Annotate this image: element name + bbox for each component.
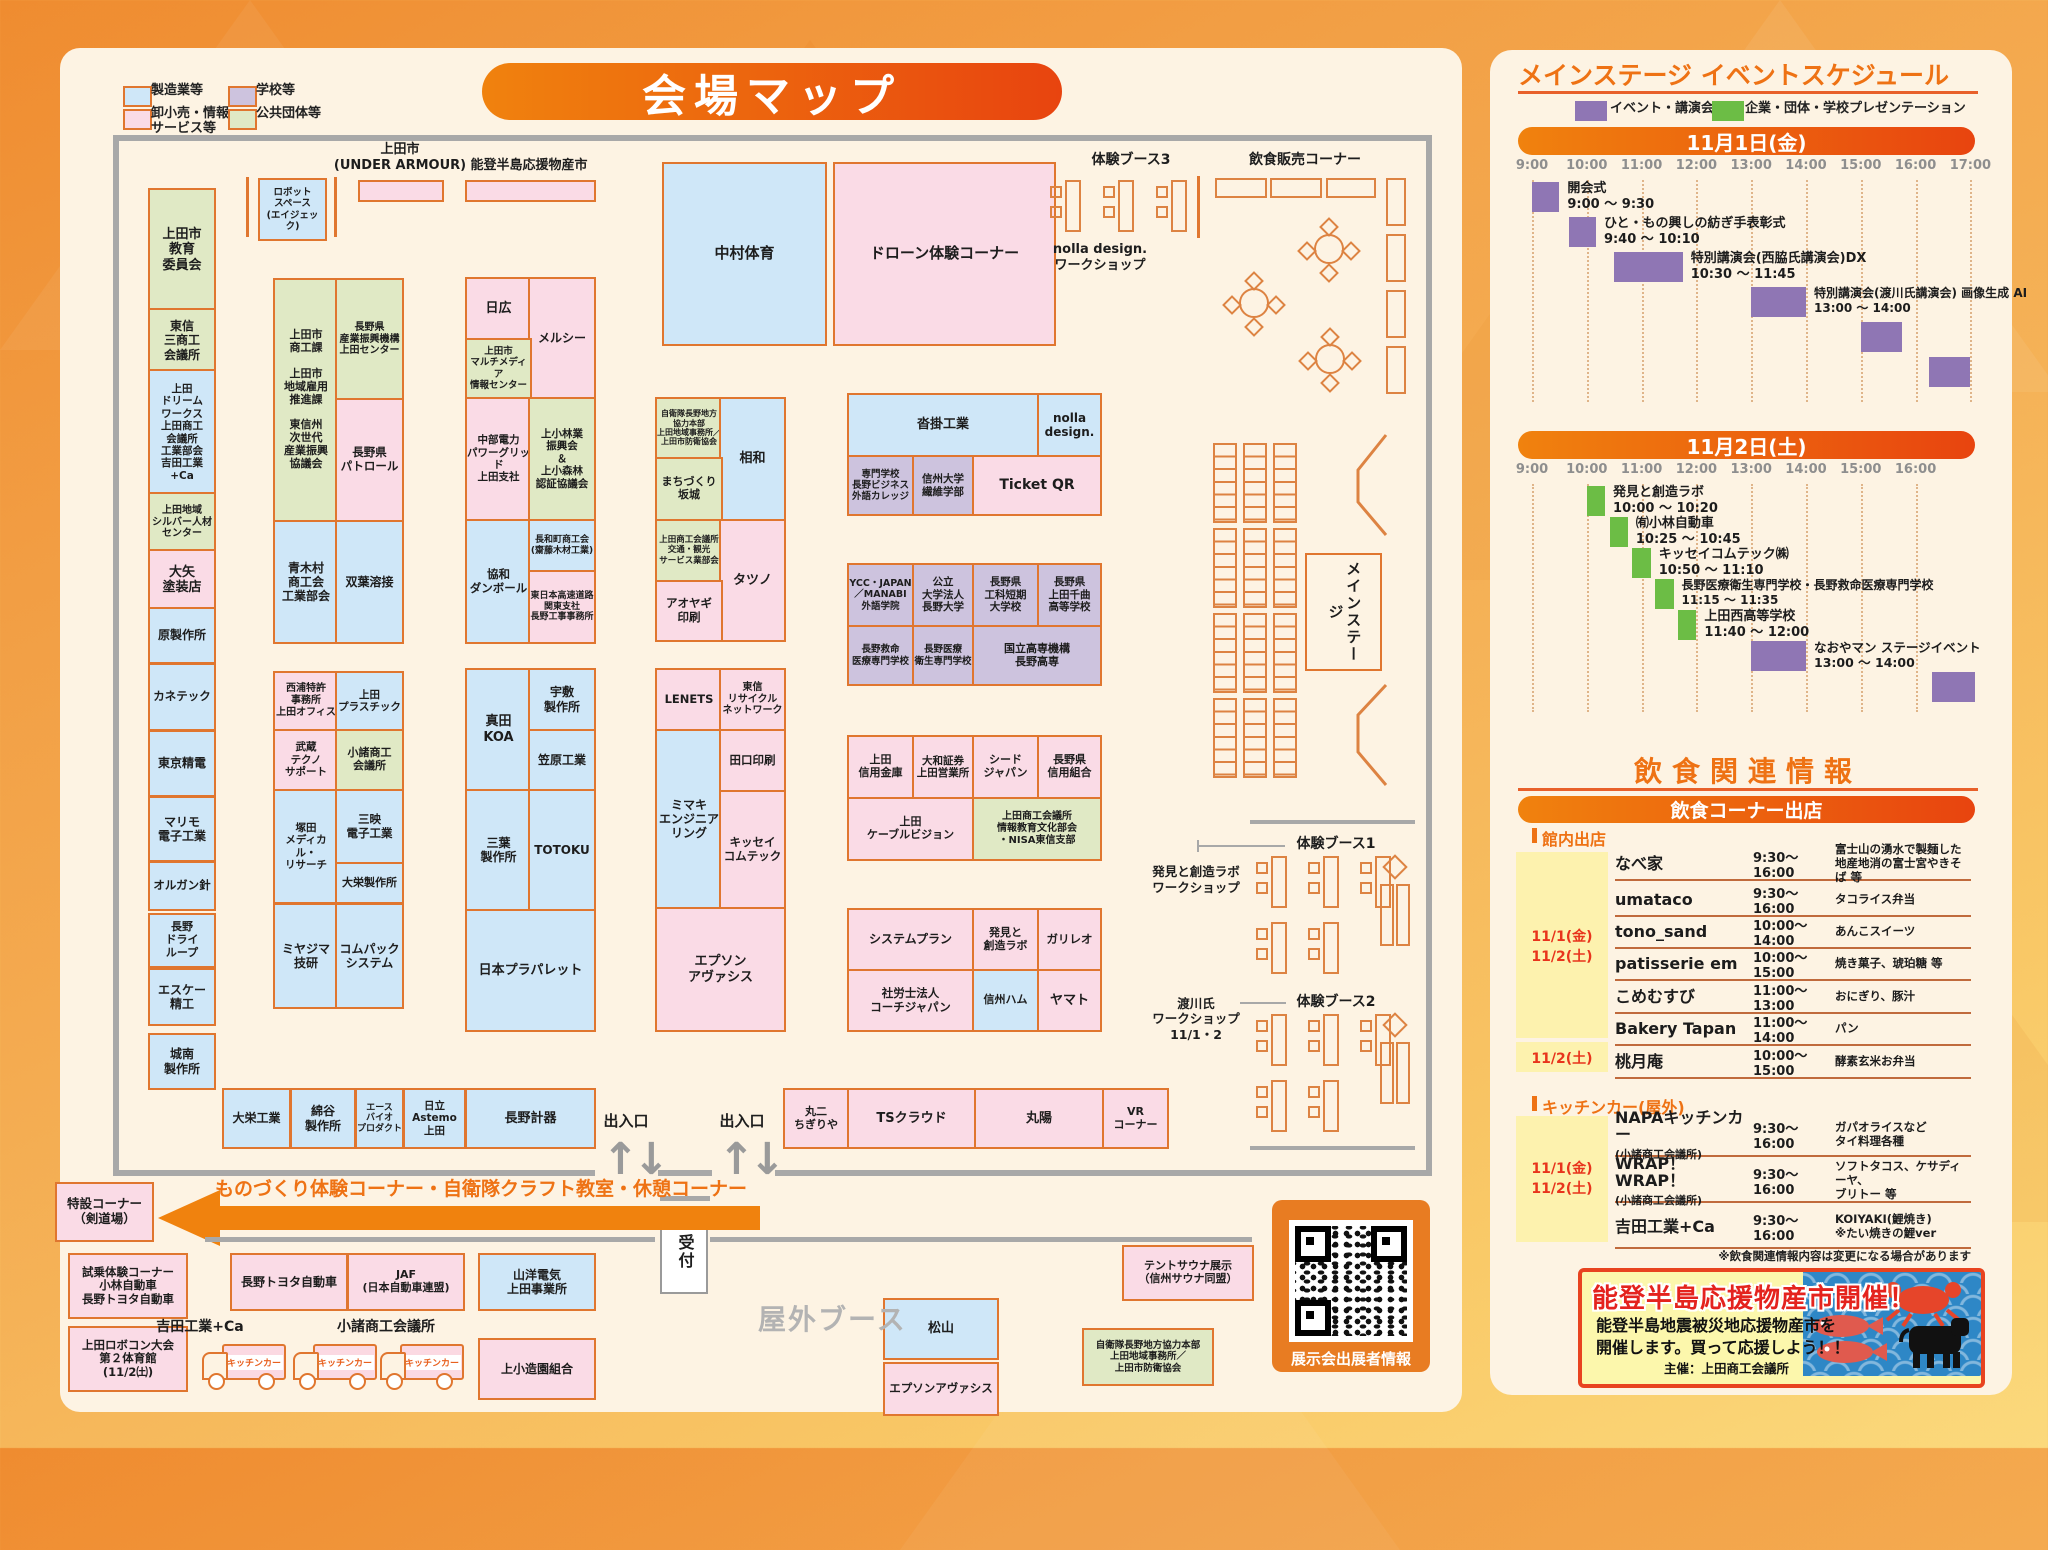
booth: 上田市 教育 委員会 <box>148 188 216 312</box>
food-title-underline <box>1518 788 1978 791</box>
legend-label: 学校等 <box>256 84 295 99</box>
booth: 塚田 メディカル・ リサーチ <box>273 789 339 904</box>
booth: 長野県 産業振興機構 上田センター <box>335 278 404 401</box>
booth: 丸二 ちぎりや <box>783 1088 849 1149</box>
craft-corner-text: ものづくり体験コーナー・自衛隊クラフト教室・休憩コーナー <box>215 1178 775 1202</box>
seating-block <box>1243 443 1267 523</box>
event-label: 特別講演会(西脇氏講演会)DX10:30 ～ 11:45 <box>1691 251 1867 283</box>
table-icon <box>1103 180 1135 234</box>
booth: オルガン針 <box>148 861 216 911</box>
legend-swatch <box>228 86 257 107</box>
table-icon <box>1386 178 1406 226</box>
booth: 特設コーナー （剣道場） <box>55 1182 154 1242</box>
table-icon <box>1215 178 1267 198</box>
booth: 長野県 上田千曲 高等学校 <box>1037 563 1102 627</box>
food-row: 桃月庵10:00～15:00酵素玄米お弁当 <box>1615 1046 1971 1078</box>
booth: マリモ 電子工業 <box>148 796 216 862</box>
booth: 長野県 信用組合 <box>1037 735 1102 799</box>
event-label: キッセイコムテック㈱10:50 ～ 11:10 <box>1659 547 1789 579</box>
booth: 信州ハム <box>972 969 1039 1032</box>
exhibitor-info-qr: 展示会出展者情報 <box>1272 1200 1430 1372</box>
booth: 上田商工会議所 交通・観光 サービス業部会 <box>655 519 723 582</box>
booth: 試乗体験コーナー 小林自動車 長野トヨタ自動車 <box>68 1253 188 1319</box>
table-icon <box>1256 922 1288 976</box>
food-note: ※飲食関連情報内容は変更になる場合があります <box>1615 1248 1971 1264</box>
day-label: 11/1(金) <box>1516 1158 1608 1178</box>
booth: ヤマト <box>1037 969 1102 1032</box>
event-label: 発見と創造ラボ10:00 ～ 10:20 <box>1613 485 1718 517</box>
map-border-bottom <box>113 1170 595 1176</box>
booth: 長野県 工科短期 大学校 <box>972 563 1039 627</box>
day1-header: 11月1日(金) <box>1518 127 1975 155</box>
booth: 日広 <box>465 277 532 341</box>
legend-swatch <box>228 109 257 130</box>
booth: 山洋電気 上田事業所 <box>478 1253 596 1311</box>
event-bar <box>1569 217 1596 247</box>
booth: 上田市 マルチメディア 情報センター <box>465 338 532 399</box>
kitchen-row: WRAP！WRAP！(小諸商工会議所) 9:30～16:00ソフトタコス、ケサデ… <box>1615 1160 1971 1202</box>
booth: 上田地域 シルバー人材 センター <box>148 492 216 553</box>
table-icon <box>1256 856 1288 910</box>
table-icon <box>1270 178 1322 198</box>
booth: YCC・JAPAN ／MANABI 外語学院 <box>847 563 914 627</box>
seating-block <box>1213 613 1237 693</box>
booth: 宇敷 製作所 <box>528 668 596 731</box>
booth: システムプラン <box>847 908 974 971</box>
booth: 上田 ドリーム ワークス 上田商工 会議所 工業部会 吉田工業+Ca <box>148 369 216 496</box>
booth: 大和証券 上田営業所 <box>912 735 974 799</box>
noto-support-banner: 能登半島応援物産市開催！ 能登半島地震被災地応援物産市を 開催します。買って応援… <box>1578 1268 1985 1388</box>
section-line <box>1250 1146 1415 1150</box>
map-area-label: nolla design. ワークショップ <box>1022 240 1178 276</box>
booth: メルシー <box>528 277 596 399</box>
indoor-header: 館内出店 <box>1542 826 1606 850</box>
booth: 上田商工会議所 情報教育文化部会 ・NISA東信支部 <box>972 797 1102 861</box>
booth: 丸陽 <box>974 1088 1104 1149</box>
seating-block <box>1243 528 1267 608</box>
event-bar <box>1632 548 1650 578</box>
booth: コムパック システム <box>335 903 404 1009</box>
booth: 東信 リサイクル ネットワーク <box>719 668 786 731</box>
booth: タツノ <box>719 519 786 642</box>
day2-header: 11月2日(土) <box>1518 431 1975 459</box>
booth: 田口印刷 <box>719 729 786 792</box>
stage-curtain-line <box>1350 430 1400 790</box>
booth <box>358 180 444 202</box>
seating-block <box>1273 443 1297 523</box>
booth: Ticket QR <box>972 455 1102 516</box>
event-bar <box>1614 252 1683 282</box>
banner-line: 能登半島地震被災地応援物産市を <box>1596 1312 1836 1336</box>
event-label: 上田西高等学校11:40 ～ 12:00 <box>1704 609 1809 641</box>
legend-swatch <box>123 109 152 130</box>
booth: 東信 三商工 会議所 <box>148 308 216 373</box>
booth: 長野トヨタ自動車 <box>230 1253 348 1311</box>
event-bar <box>1861 322 1902 352</box>
booth: 日本プラパレット <box>465 909 596 1032</box>
food-row: patisserie em10:00～15:00焼き菓子、琥珀糖 等 <box>1615 948 1971 980</box>
map-area-label: 体験ブース2 <box>1288 994 1384 1012</box>
divider <box>334 177 337 237</box>
event-bar <box>1587 486 1605 516</box>
booth: 日立 Astemo 上田 <box>403 1088 466 1149</box>
map-area-label: 渡川氏 ワークショップ 11/1・2 <box>1138 992 1254 1046</box>
map-area-label: 発見と創造ラボ ワークショップ <box>1138 862 1254 898</box>
table-icon <box>1380 1042 1394 1104</box>
event-label: 特別講演会(渡川氏講演会) 画像生成 AI13:00 ～ 14:00 <box>1814 286 2027 315</box>
event-bar <box>1929 357 1970 387</box>
seating-block <box>1213 698 1237 778</box>
map-area-label: 飲食販売コーナー <box>1243 152 1367 170</box>
food-section-title: 飲食関連情報 <box>1518 750 1978 790</box>
booth: 武蔵 テクノ サポート <box>273 729 339 791</box>
table-icon <box>1050 180 1082 234</box>
table-icon <box>1308 1080 1340 1134</box>
divider <box>1197 176 1200 238</box>
day-label: 11/1(金) <box>1516 926 1608 946</box>
booth: カネテック <box>148 663 216 731</box>
booth: 東京精電 <box>148 730 216 797</box>
food-row: Bakery Tapan11:00～14:00パン <box>1615 1013 1971 1045</box>
booth: 長和町商工会 (齋藤木材工業) <box>528 519 596 572</box>
booth: 発見と 創造ラボ <box>972 908 1039 971</box>
booth: 上小造園組合 <box>478 1338 596 1400</box>
table-icon <box>1156 180 1188 234</box>
legend-label: イベント・講演会 <box>1610 102 1714 117</box>
seating-block <box>1273 698 1297 778</box>
booth: 上田 信用金庫 <box>847 735 914 799</box>
booth: 自衛隊長野地方協力本部 上田地域事務所／ 上田市防衛協会 <box>1082 1328 1214 1386</box>
booth: 双葉溶接 <box>335 520 404 644</box>
booth: ガリレオ <box>1037 908 1102 971</box>
legend-swatch-event <box>1575 101 1607 121</box>
legend-swatch <box>123 86 152 107</box>
booth: まちづくり 坂城 <box>655 457 723 521</box>
table-icon <box>1308 922 1340 976</box>
seating-block <box>1213 443 1237 523</box>
booth: 長野 ドライ ループ <box>148 913 216 968</box>
booth: 城南 製作所 <box>148 1033 216 1090</box>
table-icon <box>1380 884 1394 946</box>
booth: 原製作所 <box>148 607 216 664</box>
event-label: ㈲小林自動車10:25 ～ 10:45 <box>1636 516 1741 548</box>
table-icon <box>1396 884 1410 946</box>
booth: 協和 ダンボール <box>465 519 532 644</box>
event-bar <box>1932 672 1975 702</box>
seating-block <box>1273 528 1297 608</box>
kitchen-truck-icon: キッチンカー <box>200 1340 284 1390</box>
round-table-icon <box>1314 234 1344 264</box>
seating-block <box>1243 698 1267 778</box>
booth: 長野県 パトロール <box>335 398 404 522</box>
round-table-icon <box>1315 344 1345 374</box>
booth: TSクラウド <box>847 1088 976 1149</box>
food-row: tono_sand10:00～14:00あんこスイーツ <box>1615 916 1971 948</box>
booth: 相和 <box>719 397 786 521</box>
booth: 公立 大学法人 長野大学 <box>912 563 974 627</box>
booth: エスケー 精工 <box>148 968 216 1026</box>
booth: LENETS <box>655 668 723 731</box>
booth: 真田 KOA <box>465 668 532 791</box>
map-border-bottom <box>658 1170 712 1176</box>
banner-line: 開催します。買って応援しよう！！ <box>1596 1334 1850 1358</box>
banner-host: 主催：上田商工会議所 <box>1664 1358 1789 1377</box>
booth: 中部電力 パワーグリッド 上田支社 <box>465 397 532 521</box>
table-icon <box>1386 290 1406 338</box>
legend-label: 公共団体等 <box>256 107 321 122</box>
map-area-label: 出入口 <box>600 1112 652 1130</box>
event-bar <box>1532 182 1559 212</box>
walk-line <box>710 1237 1252 1242</box>
section-line <box>1250 820 1415 824</box>
event-bar <box>1751 641 1806 671</box>
connector-line <box>1197 845 1285 847</box>
table-icon <box>1308 856 1340 910</box>
food-row: なべ家9:30～16:00富士山の湧水で製麺した 地産地消の富士宮やきそば 等 <box>1615 848 1971 880</box>
booth: 三映 電子工業 <box>335 789 404 864</box>
legend-label: 企業・団体・学校プレゼンテーション <box>1745 102 1966 117</box>
booth: エース バイオ プロダクト <box>355 1088 404 1149</box>
event-label: 長野医療衛生専門学校・長野救命医療専門学校11:15 ～ 11:35 <box>1682 578 1934 607</box>
booth: 三葉 製作所 <box>465 789 532 911</box>
table-icon <box>1256 1080 1288 1134</box>
booth: 上小林業 振興会 ＆ 上小森林 認証協議会 <box>528 397 596 521</box>
booth: 笠原工業 <box>528 729 596 791</box>
food-row: こめむすび11:00～13:00おにぎり、豚汁 <box>1615 981 1971 1013</box>
map-border-top <box>113 135 1432 141</box>
booth: 上田 プラスチック <box>335 671 404 731</box>
event-label: なおやマン ステージイベント13:00 ～ 14:00 <box>1814 640 1981 671</box>
round-table-icon <box>1239 288 1269 318</box>
event-bar <box>1678 610 1696 640</box>
booth: 中村体育 <box>662 162 827 346</box>
booth: 長野医療 衛生専門学校 <box>912 625 974 686</box>
legend-label: 製造業等 <box>151 84 203 99</box>
banner-title: 能登半島応援物産市開催！ <box>1592 1278 1916 1315</box>
table-icon <box>1386 346 1406 394</box>
booth: 大矢 塗装店 <box>148 549 216 611</box>
event-flyer: { "accent":{"orange":"#ee7214","pill_fro… <box>0 0 2048 1448</box>
map-area-label: 体験ブース3 <box>1083 152 1179 170</box>
kitchen-truck-icon: キッチンカー <box>378 1340 462 1390</box>
outdoor-booth-label: 屋外ブース <box>758 1298 907 1338</box>
booth: JAF (日本自動車連盟) <box>347 1253 465 1311</box>
map-area-label: 出入口 <box>716 1112 768 1130</box>
booth: 国立高専機構 長野高専 <box>972 625 1102 686</box>
event-bar <box>1610 517 1628 547</box>
title-underline <box>1518 91 1978 94</box>
map-area-label: 体験ブース1 <box>1288 836 1384 854</box>
booth: VR コーナー <box>1102 1088 1169 1149</box>
booth: 長野救命 医療専門学校 <box>847 625 914 686</box>
seating-block <box>1273 613 1297 693</box>
map-border-left <box>113 135 119 1176</box>
booth: シード ジャパン <box>972 735 1039 799</box>
booth: 青木村 商工会 工業部会 <box>273 520 339 644</box>
table-icon <box>1386 234 1406 282</box>
booth: 長野計器 <box>465 1088 596 1149</box>
booth: 西浦特許 事務所 上田オフィス <box>273 671 339 731</box>
booth: nolla design. <box>1037 393 1102 457</box>
booth: アオヤギ 印刷 <box>655 580 723 642</box>
booth: ロボット スペース (エイジェック) <box>258 178 327 241</box>
qr-code-icon <box>1289 1220 1413 1342</box>
table-icon <box>1256 1014 1288 1068</box>
seating-block <box>1213 528 1237 608</box>
event-bar <box>1751 287 1806 317</box>
booth: 綿谷 製作所 <box>290 1088 356 1149</box>
booth: 上田市 商工課 上田市 地域雇用 推進課 東信州 次世代 産業振興 協議会 <box>273 278 339 522</box>
day-label: 11/2(土) <box>1516 946 1608 966</box>
booth: ミヤジマ 技研 <box>273 903 339 1009</box>
day-label: 11/2(土) <box>1516 1048 1608 1068</box>
booth: エプソンアヴァシス <box>883 1362 999 1416</box>
walk-line <box>205 1237 655 1242</box>
booth: キッセイ コムテック <box>719 790 786 909</box>
event-label: 開会式9:00 ～ 9:30 <box>1567 181 1654 213</box>
event-label: ひと・もの興しの紡ぎ手表彰式9:40 ～ 10:10 <box>1604 216 1786 248</box>
food-corner-header: 飲食コーナー出店 <box>1518 796 1975 823</box>
booth: 沓掛工業 <box>847 393 1039 457</box>
booth: 大栄製作所 <box>335 862 404 904</box>
kitchen-row: 吉田工業+Ca 9:30～16:00KOIYAKI(鯉焼き) ※たい焼きの鯉ve… <box>1615 1206 1971 1248</box>
map-border-bottom <box>775 1170 1432 1176</box>
schedule-title: メインステージ イベントスケジュール <box>1518 56 1978 92</box>
table-icon <box>1396 1042 1410 1104</box>
booth: テントサウナ展示 （信州サウナ同盟） <box>1122 1245 1254 1301</box>
booth: 小諸商工 会議所 <box>335 729 404 791</box>
booth: 大栄工業 <box>222 1088 291 1149</box>
map-title: 会場マップ <box>482 63 1062 120</box>
kitchen-row: NAPAキッチンカー(小諸商工会議所) 9:30～16:00ガパオライスなど タ… <box>1615 1114 1971 1156</box>
booth: ミマキ エンジニア リング <box>655 729 723 909</box>
table-icon <box>1308 1014 1340 1068</box>
table-icon <box>1326 178 1376 198</box>
qr-caption: 展示会出展者情報 <box>1291 1348 1411 1369</box>
food-row: umataco9:30～16:00タコライス弁当 <box>1615 884 1971 916</box>
booth: 社労士法人 コーチジャパン <box>847 969 974 1032</box>
divider <box>246 177 249 237</box>
map-border-right <box>1426 135 1432 1176</box>
booth: 上田 ケーブルビジョン <box>847 797 974 861</box>
booth <box>465 180 596 202</box>
booth: 信州大学 繊維学部 <box>912 455 974 516</box>
booth: TOTOKU <box>528 789 596 911</box>
booth: 専門学校 長野ビジネス 外語カレッジ <box>847 455 914 516</box>
booth: エプソン アヴァシス <box>655 907 786 1032</box>
seating-block <box>1243 613 1267 693</box>
legend-swatch-presentation <box>1712 101 1744 121</box>
kitchen-truck-icon: キッチンカー <box>291 1340 375 1390</box>
day-label: 11/2(土) <box>1516 1178 1608 1198</box>
craft-corner-arrow <box>218 1206 760 1230</box>
event-bar <box>1655 579 1673 609</box>
connector-line <box>1240 1002 1286 1004</box>
booth: 自衛隊長野地方 協力本部 上田地域事務所／ 上田市防衛協会 <box>655 397 723 459</box>
booth: 東日本高速道路 関東支社 長野工事事務所 <box>528 570 596 644</box>
